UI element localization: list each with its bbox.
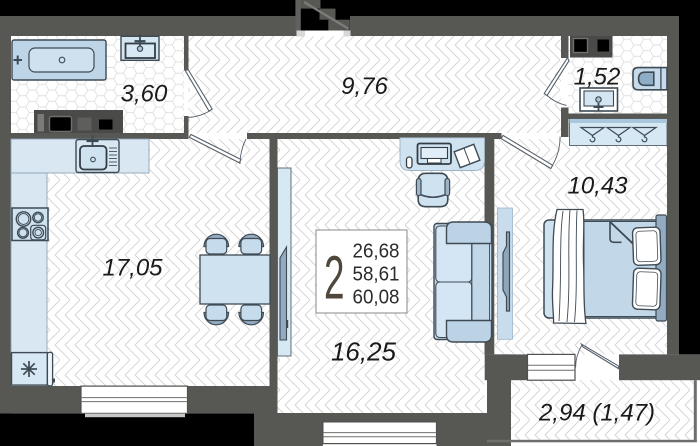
svg-text:60,08: 60,08 [353,286,400,309]
svg-text:16,25: 16,25 [331,337,397,367]
svg-text:26,68: 26,68 [353,240,400,263]
svg-text:9,76: 9,76 [341,73,388,100]
svg-text:3,60: 3,60 [121,81,168,108]
svg-text:2,94 (1,47): 2,94 (1,47) [538,400,655,427]
svg-text:2: 2 [324,244,345,312]
svg-text:58,61: 58,61 [353,263,400,286]
svg-text:1,52: 1,52 [574,64,621,91]
svg-text:10,43: 10,43 [567,173,628,200]
svg-text:17,05: 17,05 [102,255,163,282]
